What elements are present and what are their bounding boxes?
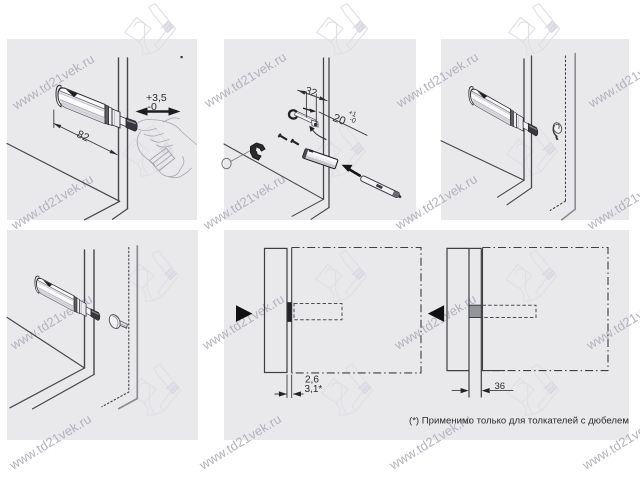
svg-text:3,1*: 3,1* bbox=[305, 384, 323, 395]
svg-text:36: 36 bbox=[495, 381, 506, 392]
svg-text:(*) Применимо только для толка: (*) Применимо только для толкателей с дю… bbox=[409, 416, 629, 427]
